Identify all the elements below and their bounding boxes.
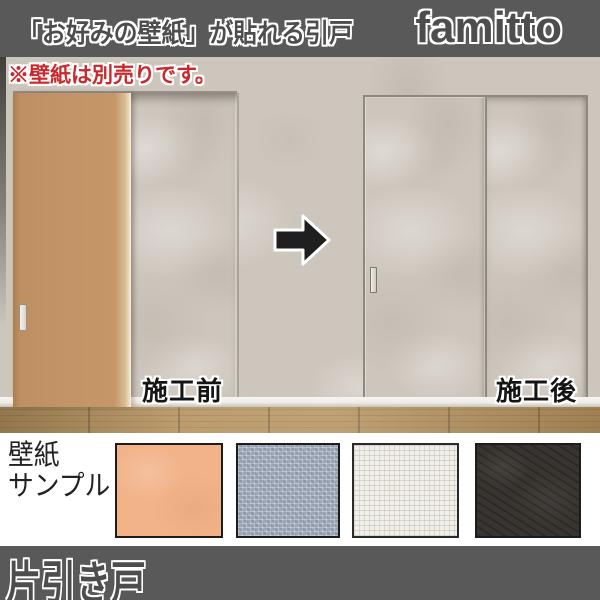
fixed-panel-after — [487, 97, 586, 402]
swatch-peach — [115, 443, 223, 538]
sliding-door-after-wallpapered — [365, 97, 487, 402]
samples-title-line2: サンプル — [8, 470, 110, 501]
door-handle-after — [370, 267, 377, 293]
samples-title: 壁紙 サンプル — [8, 439, 110, 501]
after-label: 施工後 — [496, 371, 577, 408]
wallpaper-samples-strip: 壁紙 サンプル — [0, 433, 600, 546]
swatch-white-grid — [352, 443, 459, 538]
wallpaper-sold-separately-notice: ※壁紙は別売りです。 — [8, 59, 216, 89]
header-bar: 「お好みの壁紙」が貼れる引戸 famitto — [0, 0, 600, 57]
sliding-door-before — [13, 93, 131, 407]
page-title: 「お好みの壁紙」が貼れる引戸 — [18, 13, 353, 50]
product-banner: 「お好みの壁紙」が貼れる引戸 famitto 施工前 施工後 ※壁紙は別売りです… — [0, 0, 600, 600]
doorway-opening-after — [363, 95, 588, 404]
door-handle-before — [19, 304, 27, 331]
samples-title-line1: 壁紙 — [8, 439, 110, 470]
wall-corner-shadow — [0, 57, 6, 327]
doorway-opening-before — [128, 93, 239, 406]
footer-bar: 片引き戸 — [0, 546, 600, 600]
door-type-label: 片引き戸 — [6, 547, 146, 600]
brand-logo: famitto — [415, 3, 562, 53]
before-after-photo: 施工前 施工後 ※壁紙は別売りです。 — [0, 57, 600, 433]
swatch-blue-gray-weave — [236, 443, 340, 538]
swatch-dark-brown-leather — [475, 443, 581, 538]
right-arrow-icon — [272, 213, 332, 274]
before-label: 施工前 — [142, 371, 223, 408]
wood-floor — [0, 407, 600, 433]
